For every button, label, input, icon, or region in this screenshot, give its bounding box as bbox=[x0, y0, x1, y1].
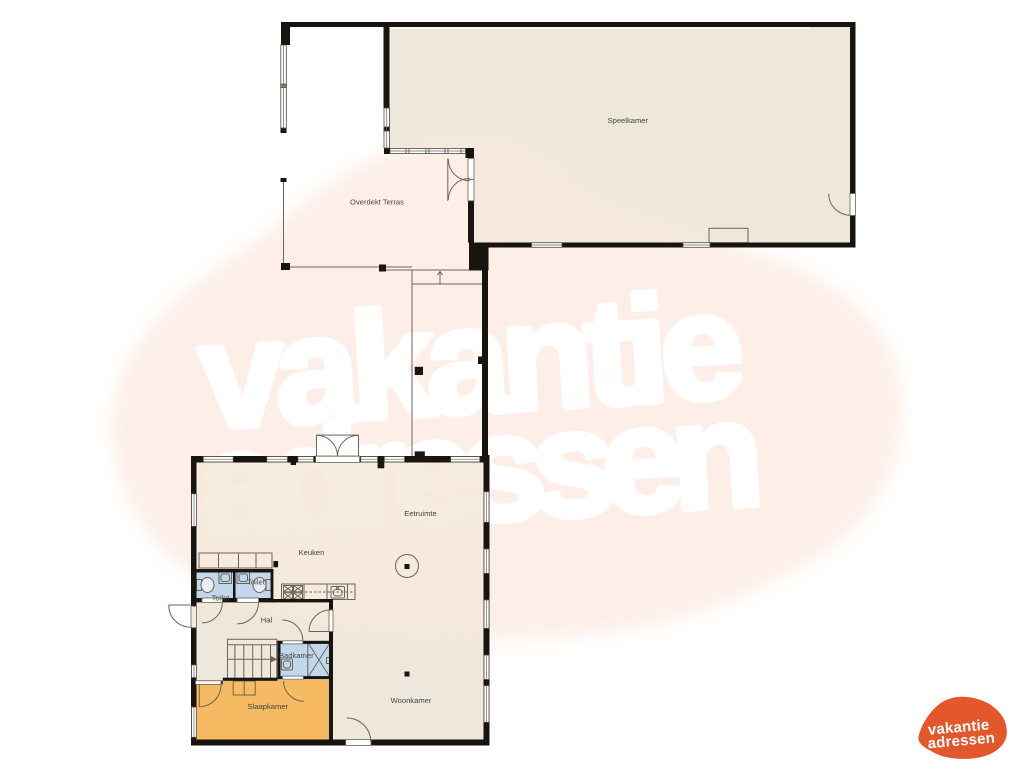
svg-text:Toilet: Toilet bbox=[212, 594, 231, 603]
svg-text:Toilet: Toilet bbox=[247, 578, 266, 587]
svg-text:Speelkamer: Speelkamer bbox=[608, 116, 649, 125]
svg-text:Slaapkamer: Slaapkamer bbox=[248, 702, 289, 711]
svg-text:Keuken: Keuken bbox=[299, 548, 325, 557]
svg-text:Woonkamer: Woonkamer bbox=[391, 696, 432, 705]
svg-text:Badkamer: Badkamer bbox=[279, 651, 314, 660]
svg-text:Eetruimte: Eetruimte bbox=[404, 509, 437, 518]
svg-text:Overdekt Terras: Overdekt Terras bbox=[350, 198, 404, 207]
svg-text:Hal: Hal bbox=[261, 616, 273, 625]
